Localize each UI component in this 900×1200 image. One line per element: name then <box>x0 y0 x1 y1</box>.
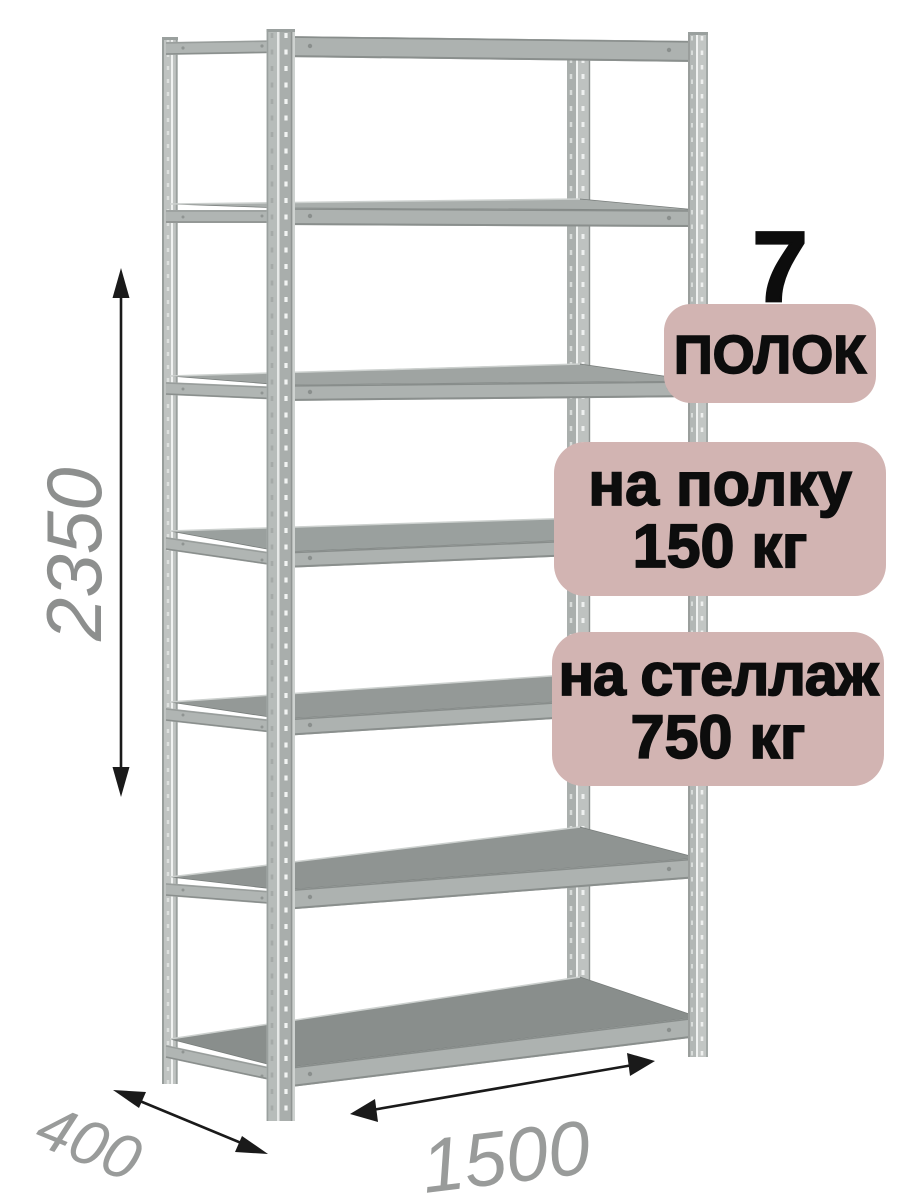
svg-text:150 кг: 150 кг <box>633 512 808 580</box>
svg-text:750 кг: 750 кг <box>631 703 806 771</box>
svg-text:на полку: на полку <box>588 450 852 518</box>
svg-text:на стеллаж: на стеллаж <box>559 642 880 708</box>
svg-text:2350: 2350 <box>30 467 118 642</box>
svg-text:ПОЛОК: ПОЛОК <box>674 325 867 385</box>
